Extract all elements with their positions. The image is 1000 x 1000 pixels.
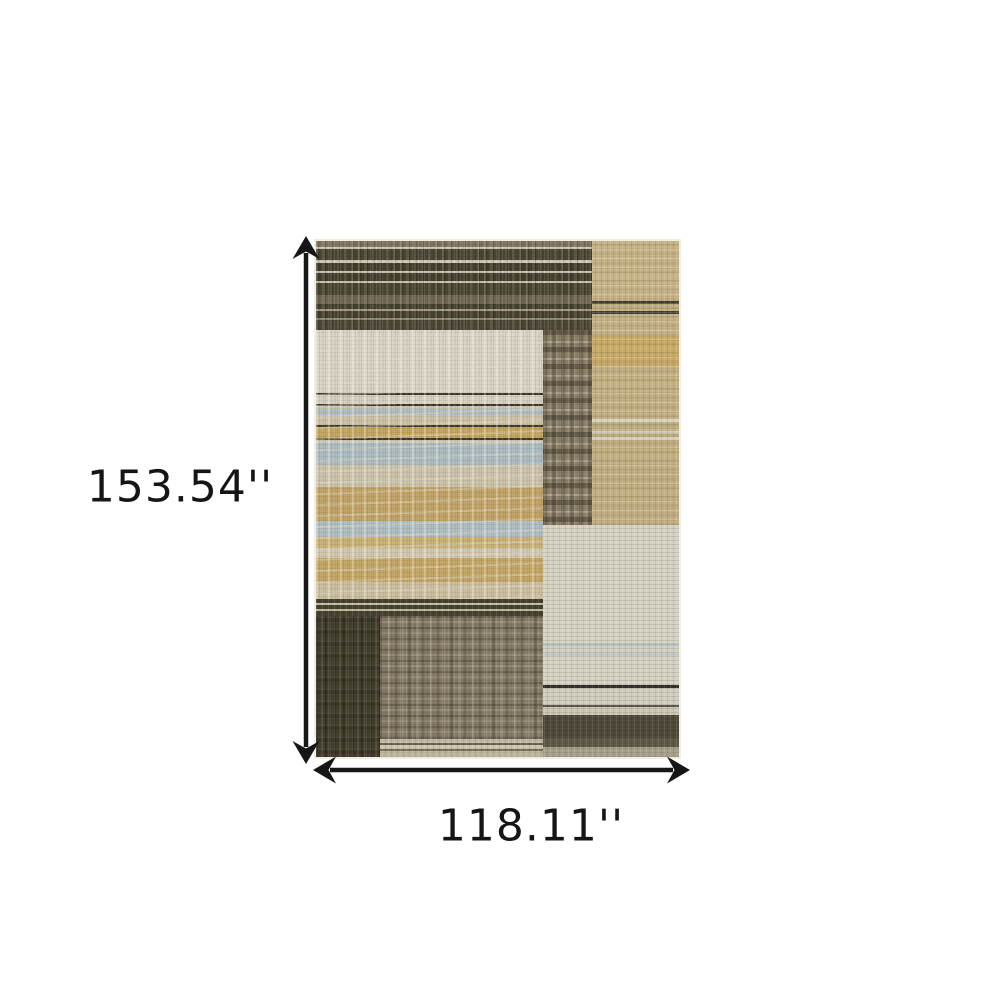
arrow-left-head-icon xyxy=(313,757,336,784)
horizontal-dimension-arrow xyxy=(313,757,690,784)
rug-image xyxy=(316,241,679,757)
arrow-right-head-icon xyxy=(667,757,690,784)
width-dimension-label: 118.11'' xyxy=(438,801,624,852)
product-dimension-diagram: 153.54'' 118.11'' xyxy=(0,0,1000,1000)
rug-texture-overlay xyxy=(316,241,679,757)
height-dimension-label: 153.54'' xyxy=(87,462,273,513)
